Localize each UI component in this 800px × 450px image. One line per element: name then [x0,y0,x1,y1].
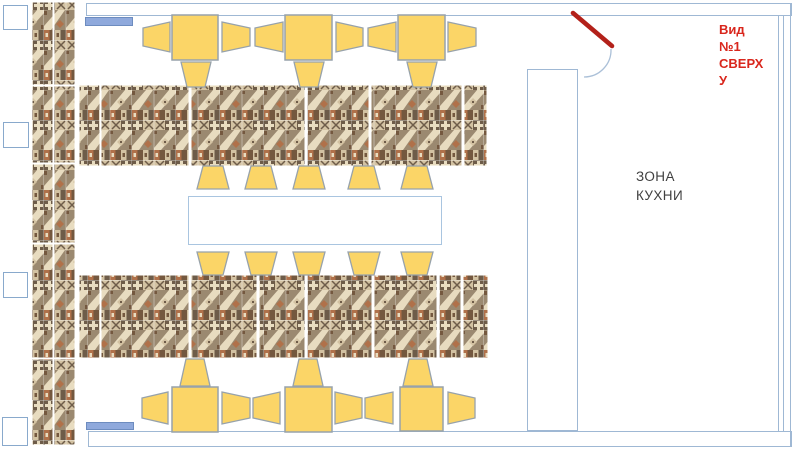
chair [293,166,325,189]
banquette-segment [371,85,462,166]
wall-banquette-segment [32,164,53,243]
banquette-segment [374,275,437,358]
wall-banquette-segment [54,244,75,358]
banquette-segment [439,275,461,358]
chair [448,22,476,52]
chair [222,22,250,52]
wall-banquette-segment [32,359,53,445]
chair [335,392,362,424]
chair [255,22,283,52]
banquette-segment [307,85,369,166]
square-table [172,387,218,432]
wall-banquette-segment [54,86,75,163]
wall-banquette-segment [32,2,53,85]
wall-banquette-segment [54,359,75,445]
banquette-segment [79,275,100,358]
chair [181,62,211,87]
banquette-segment [191,275,257,358]
chair [336,22,363,52]
square-table [398,15,445,60]
chair [245,166,277,189]
chair [401,166,433,189]
banquette-segment [101,275,189,358]
chair [293,252,325,275]
chair [142,392,168,424]
long-table-chairs [197,166,433,275]
chair [180,359,210,386]
chair [348,166,380,189]
banquette-segment [463,275,488,358]
square-table [285,387,332,432]
banquette-row-top [79,85,487,166]
wall-banquette-segment [32,244,53,358]
square-table [400,387,443,431]
chair [403,359,433,386]
door-swing-arc [584,49,611,77]
chair [448,392,475,424]
chair [294,62,324,87]
chair [222,392,250,424]
furniture-layer [0,0,800,450]
chair [143,22,170,52]
square-table [285,15,332,60]
banquette-segment [307,275,372,358]
top-table-group [143,15,476,87]
chair [368,22,396,52]
view-label: Вид №1 СВЕРХ У [719,21,783,89]
kitchen-zone-label: ЗОНА КУХНИ [636,167,726,205]
banquette-segment [464,85,487,166]
wall-banquette-segment [54,2,75,85]
floor-plan-slide: Вид №1 СВЕРХ У ЗОНА КУХНИ [0,0,800,450]
chair [197,166,229,189]
bottom-table-group [142,359,475,432]
chair [401,252,433,275]
chair [365,392,393,424]
banquette-segment [191,85,305,166]
banquette-segment [259,275,305,358]
wall-banquette [32,2,75,445]
wall-banquette-segment [32,86,53,163]
banquette-row-bottom [79,275,488,358]
banquette-segment [79,85,100,166]
chair [245,252,277,275]
square-table [172,15,218,60]
chair [197,252,229,275]
chair [253,392,280,424]
chair [348,252,380,275]
banquette-segment [101,85,189,166]
door-leaf [573,13,612,46]
wall-banquette-segment [54,164,75,243]
chair [293,359,323,386]
chair [407,62,437,87]
